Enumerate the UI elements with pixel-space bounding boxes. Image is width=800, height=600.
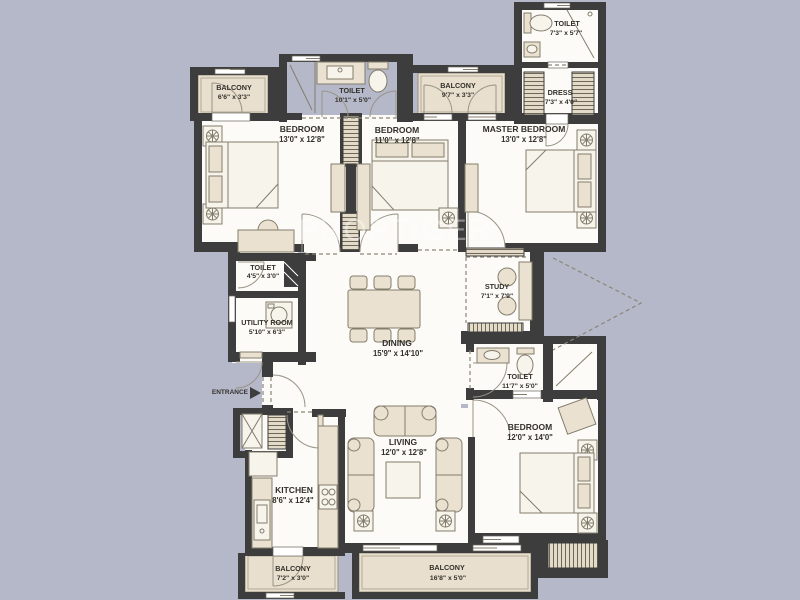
room-dims: 11'7" x 5'0" bbox=[502, 383, 538, 390]
wall-segment bbox=[461, 336, 551, 344]
wall-segment bbox=[228, 352, 240, 362]
wardrobe-icon bbox=[343, 116, 359, 164]
side-table-icon bbox=[577, 130, 596, 150]
side-table-icon bbox=[354, 511, 373, 531]
wall-segment bbox=[531, 553, 538, 598]
room-dims: 13'0" x 12'8" bbox=[279, 135, 325, 144]
room-dims: 13'0" x 12'8" bbox=[501, 135, 547, 144]
balcony-floor bbox=[359, 553, 531, 592]
room-label: BEDROOM bbox=[375, 125, 419, 135]
stairs-icon bbox=[548, 543, 598, 568]
sink-icon bbox=[484, 351, 500, 360]
wall-segment bbox=[338, 409, 345, 556]
door-sill bbox=[240, 352, 262, 358]
coffee-table-icon bbox=[386, 462, 420, 498]
wall-segment bbox=[279, 54, 287, 122]
wall-segment bbox=[233, 408, 240, 458]
room-label: BALCONY bbox=[216, 83, 252, 92]
wall-segment bbox=[262, 352, 273, 377]
room-dims: 12'0" x 14'0" bbox=[507, 433, 553, 442]
wall-segment bbox=[522, 62, 548, 68]
room-dims: 10'1" x 5'0" bbox=[335, 97, 371, 104]
wardrobe-icon bbox=[466, 248, 524, 256]
wc-icon bbox=[369, 70, 387, 92]
wall-segment bbox=[505, 65, 514, 117]
bed-icon bbox=[526, 150, 596, 212]
wall-segment bbox=[468, 390, 513, 399]
bed-icon bbox=[520, 453, 594, 513]
sofa-icon bbox=[436, 438, 462, 512]
sofa-icon bbox=[374, 406, 436, 436]
side-table-icon bbox=[436, 511, 455, 531]
wardrobe-icon bbox=[524, 72, 544, 115]
room-dims: 7'1" x 7'9" bbox=[481, 293, 513, 300]
wall-segment bbox=[538, 568, 608, 578]
wardrobe-icon bbox=[465, 164, 478, 212]
wall-segment bbox=[346, 165, 356, 215]
wall-segment bbox=[236, 291, 298, 298]
room-dims: 16'8" x 5'0" bbox=[430, 575, 466, 582]
wc-tank bbox=[517, 348, 534, 354]
wall-segment bbox=[514, 2, 522, 123]
chair-icon bbox=[374, 276, 391, 289]
kitchen-sink-icon bbox=[254, 500, 270, 540]
room-dims: 11'0" x 12'8" bbox=[374, 136, 420, 145]
pillow bbox=[578, 484, 590, 508]
desk-icon bbox=[519, 262, 532, 320]
sofa-icon bbox=[348, 438, 374, 512]
room-dims: 15'9" x 14'10" bbox=[373, 349, 423, 358]
watermark-text: PROPTIGER bbox=[298, 214, 493, 247]
room-dims: 7'3" x 4'0" bbox=[545, 99, 577, 106]
room-label: KITCHEN bbox=[275, 485, 313, 495]
cabinet-icon bbox=[249, 452, 277, 476]
wall-segment bbox=[541, 390, 606, 399]
room-label: BALCONY bbox=[275, 564, 311, 573]
wall-segment bbox=[194, 113, 202, 252]
room-dims: 7'2" x 3'0" bbox=[277, 575, 309, 582]
pillow bbox=[578, 457, 590, 481]
wall-segment bbox=[190, 67, 198, 117]
room-label: BEDROOM bbox=[508, 422, 552, 432]
window-ledge bbox=[468, 323, 523, 332]
room-label: TOILET bbox=[250, 263, 276, 272]
room-dims: 9'7" x 3'3" bbox=[442, 92, 474, 99]
room-label: TOILET bbox=[507, 372, 533, 381]
room-label: MASTER BEDROOM bbox=[483, 124, 566, 134]
wall-segment bbox=[598, 540, 608, 578]
side-table-icon bbox=[578, 513, 597, 533]
pillow bbox=[376, 143, 408, 157]
wardrobe-icon bbox=[331, 164, 345, 212]
room-label: UTILITY ROOM bbox=[241, 318, 292, 327]
pillow bbox=[578, 182, 591, 207]
pillow bbox=[412, 143, 444, 157]
room-label: STUDY bbox=[485, 282, 510, 291]
wall-segment bbox=[352, 553, 359, 598]
wall-segment bbox=[397, 54, 413, 122]
room-label: BALCONY bbox=[429, 563, 465, 572]
room-dims: 5'10" x 6'3" bbox=[249, 329, 285, 336]
room-label: TOILET bbox=[554, 19, 580, 28]
room-dims: 6'6" x 3'3" bbox=[218, 94, 250, 101]
room-label: BALCONY bbox=[440, 81, 476, 90]
floorplan-canvas: ENTRANCE BALCONY 6'6" x 3'3" TOILET 10'1… bbox=[0, 0, 800, 600]
wc-tank bbox=[368, 62, 388, 69]
chair-icon bbox=[350, 276, 367, 289]
room-label: TOILET bbox=[339, 86, 365, 95]
wall-segment bbox=[287, 113, 302, 120]
wall-segment bbox=[352, 592, 538, 599]
chair-icon bbox=[398, 276, 415, 289]
wardrobe-icon bbox=[572, 72, 594, 115]
wall-segment bbox=[568, 62, 598, 68]
door-opening bbox=[546, 114, 568, 124]
wall-segment bbox=[543, 336, 605, 344]
room-balcony-bot-mid bbox=[359, 553, 531, 592]
room-label: LIVING bbox=[389, 437, 418, 447]
room-label: DRESS bbox=[548, 88, 573, 97]
bed-icon bbox=[206, 142, 278, 208]
entrance-label: ENTRANCE bbox=[212, 389, 249, 396]
door-opening bbox=[273, 547, 303, 556]
room-label: DINING bbox=[382, 338, 412, 348]
chair-icon bbox=[350, 329, 367, 342]
wall-segment bbox=[598, 390, 606, 545]
stairs-icon bbox=[268, 415, 286, 449]
pillow bbox=[578, 154, 591, 179]
pillow bbox=[209, 176, 222, 202]
shaft-icon bbox=[242, 414, 262, 448]
dining-table-icon bbox=[348, 290, 420, 328]
room-dims: 7'3" x 5'7" bbox=[550, 30, 582, 37]
pillow bbox=[209, 146, 222, 172]
wall-segment bbox=[268, 67, 279, 117]
room-dining bbox=[348, 276, 420, 342]
room-dims: 8'6" x 12'4" bbox=[272, 496, 314, 505]
wall-segment bbox=[598, 2, 606, 124]
duct-icon bbox=[284, 255, 298, 287]
hob-icon bbox=[319, 485, 337, 509]
room-label: BEDROOM bbox=[280, 124, 324, 134]
room-dims: 4'5" x 3'0" bbox=[247, 273, 279, 280]
wc-icon bbox=[530, 15, 552, 31]
wall-segment bbox=[468, 437, 475, 537]
wall-segment bbox=[598, 113, 606, 252]
window-icon bbox=[229, 296, 235, 322]
door-opening bbox=[212, 113, 250, 121]
bed-icon bbox=[372, 140, 448, 210]
wall-segment bbox=[298, 253, 306, 365]
room-dims: 12'0" x 12'8" bbox=[381, 448, 427, 457]
